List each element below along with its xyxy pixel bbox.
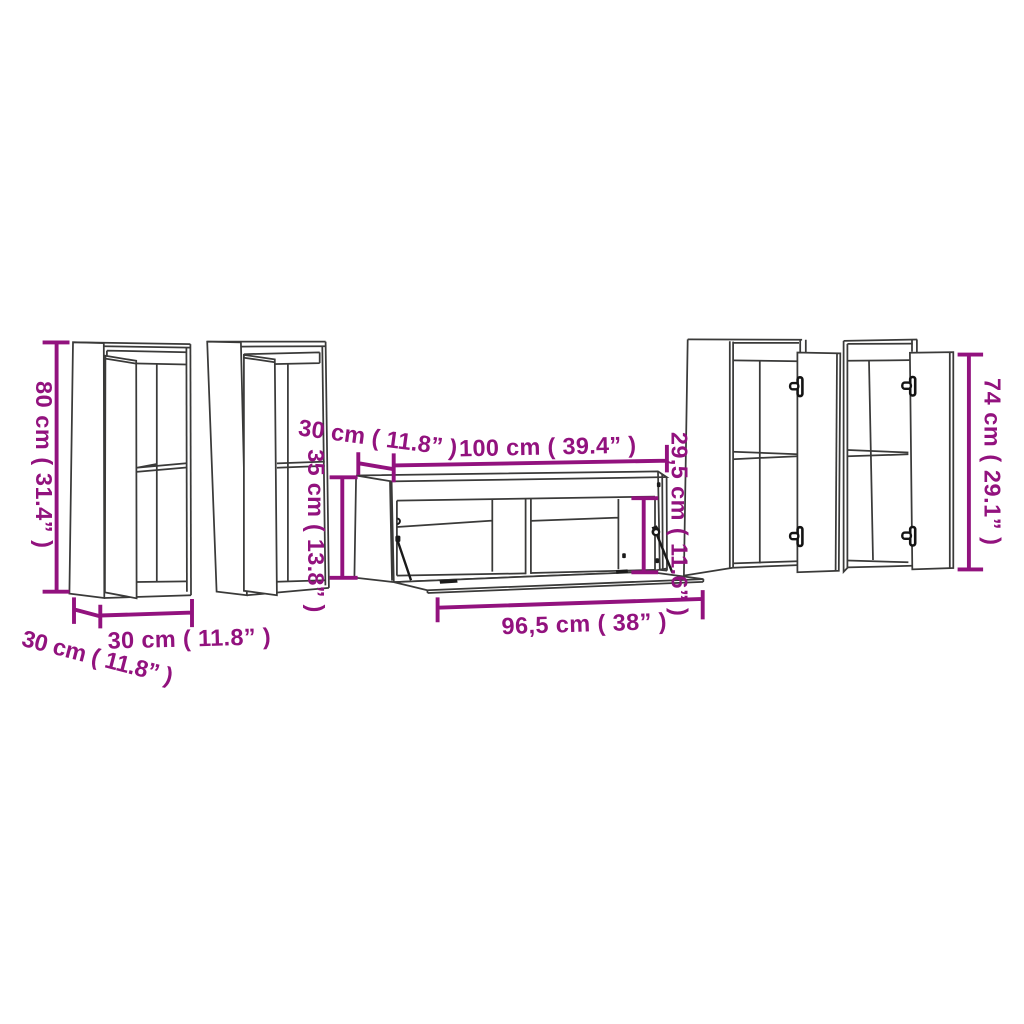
svg-text:30 cm ( 11.8” ): 30 cm ( 11.8” ): [107, 623, 271, 653]
svg-text:80 cm ( 31.4” ): 80 cm ( 31.4” ): [31, 381, 57, 548]
svg-text:100 cm ( 39.4” ): 100 cm ( 39.4” ): [459, 432, 637, 462]
svg-text:29,5 cm ( 11.6” ): 29,5 cm ( 11.6” ): [667, 432, 693, 616]
svg-text:96,5 cm ( 38” ): 96,5 cm ( 38” ): [501, 608, 667, 639]
svg-text:35 cm ( 13.8” ): 35 cm ( 13.8” ): [303, 449, 329, 612]
svg-text:74 cm ( 29.1” ): 74 cm ( 29.1” ): [980, 378, 1006, 545]
